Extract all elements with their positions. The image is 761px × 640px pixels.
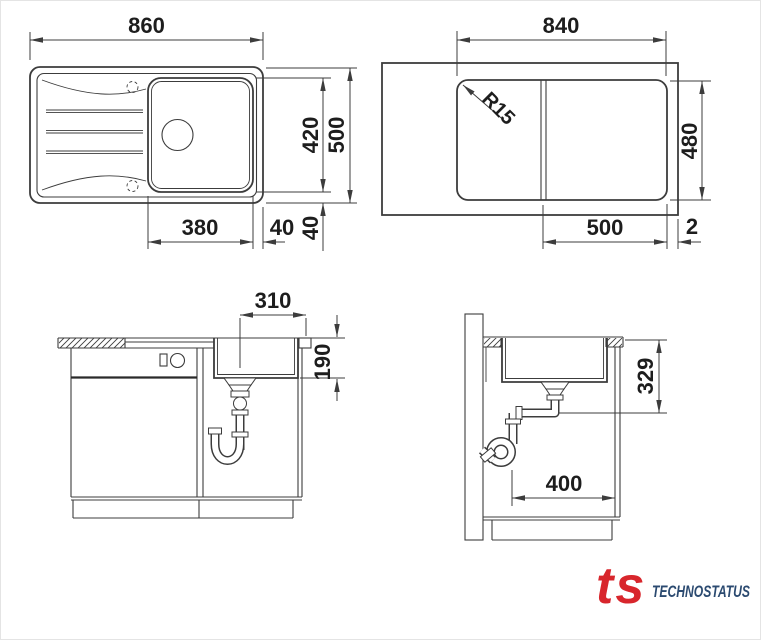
tap-hole-bottom: [127, 181, 138, 192]
drain-flange: [224, 378, 256, 385]
dim-500-cutout-label: 500: [587, 215, 624, 240]
brand-logo: ts TECHNOSTATUS: [596, 557, 750, 615]
side-countertop-hatch-right: [606, 338, 622, 347]
side-bowl-inner: [506, 338, 604, 379]
dim-190: 190: [300, 315, 345, 401]
appliance-knob-square: [160, 354, 167, 366]
appliance-knob-round: [171, 354, 185, 368]
dim-2: 2: [678, 214, 701, 249]
dim-840-label: 840: [543, 13, 580, 38]
side-bowl-section: [502, 338, 607, 382]
side-plinth: [492, 520, 612, 540]
dim-310-label: 310: [255, 288, 292, 313]
dim-400-label: 400: [546, 471, 583, 496]
drawing-sheet: 860 420 500 380 40 40: [0, 0, 761, 640]
dim-500-label: 500: [324, 117, 349, 154]
drain-hole: [162, 120, 193, 151]
logo-brand-text: TECHNOSTATUS: [652, 582, 750, 601]
sink-inner-rim: [37, 74, 257, 198]
dim-40-bottom-label: 40: [298, 216, 323, 240]
dim-40-right: 40: [263, 207, 294, 249]
front-countertop: [58, 338, 311, 348]
sheet-border: [1, 1, 761, 640]
cutout-divider: [541, 80, 546, 200]
dim-420: 420: [256, 78, 331, 192]
cabinet-plinth: [73, 500, 293, 518]
side-countertop: [483, 337, 623, 347]
front-section-drawing: 310 190: [58, 288, 345, 518]
dim-400: 400: [512, 470, 615, 506]
dim-500-cutout: 500: [543, 204, 667, 249]
dim-480-label: 480: [677, 123, 702, 160]
dim-329-label: 329: [633, 358, 658, 395]
dim-860: 860: [30, 13, 263, 60]
logo-ts-icon: ts: [596, 557, 646, 615]
side-drain-flange: [541, 382, 569, 389]
drain-ball-joint: [234, 397, 247, 410]
dim-329: 329: [558, 340, 667, 413]
sink-technical-drawing: 860 420 500 380 40 40: [0, 0, 761, 640]
front-cabinet: [71, 348, 302, 518]
front-bowl-section: [214, 338, 298, 378]
front-siphon: [209, 378, 257, 461]
dim-380-label: 380: [182, 215, 219, 240]
top-view-drawing: 860 420 500 380 40 40: [30, 13, 357, 251]
bowl-outline: [148, 78, 253, 192]
side-siphon: [480, 382, 569, 463]
dim-420-label: 420: [298, 117, 323, 154]
dim-860-label: 860: [128, 13, 165, 38]
dim-r15: R15: [463, 85, 519, 130]
dim-840: 840: [457, 13, 666, 76]
trap-cap: [209, 428, 222, 434]
dim-380: 380: [148, 196, 253, 249]
dim-190-label: 190: [310, 344, 335, 381]
dim-40-bottom: 40: [298, 203, 323, 251]
side-section-drawing: 329 400: [465, 314, 667, 540]
dim-480: 480: [670, 81, 711, 200]
dim-2-label: 2: [686, 214, 698, 239]
cutout-view-drawing: R15 840 480 500 2: [382, 13, 711, 249]
dim-40-right-label: 40: [270, 215, 294, 240]
countertop-hatch-left: [59, 339, 125, 348]
worktop-outline: [382, 63, 678, 215]
dim-310: 310: [240, 288, 306, 368]
drainboard-grooves: [42, 80, 146, 190]
tap-hole-top: [127, 82, 138, 93]
front-bowl-inner: [218, 338, 295, 375]
wall-section: [465, 314, 483, 540]
bowl-inner-edge: [152, 82, 250, 189]
side-countertop-hatch-left: [484, 338, 501, 347]
dim-r15-label: R15: [477, 88, 519, 130]
